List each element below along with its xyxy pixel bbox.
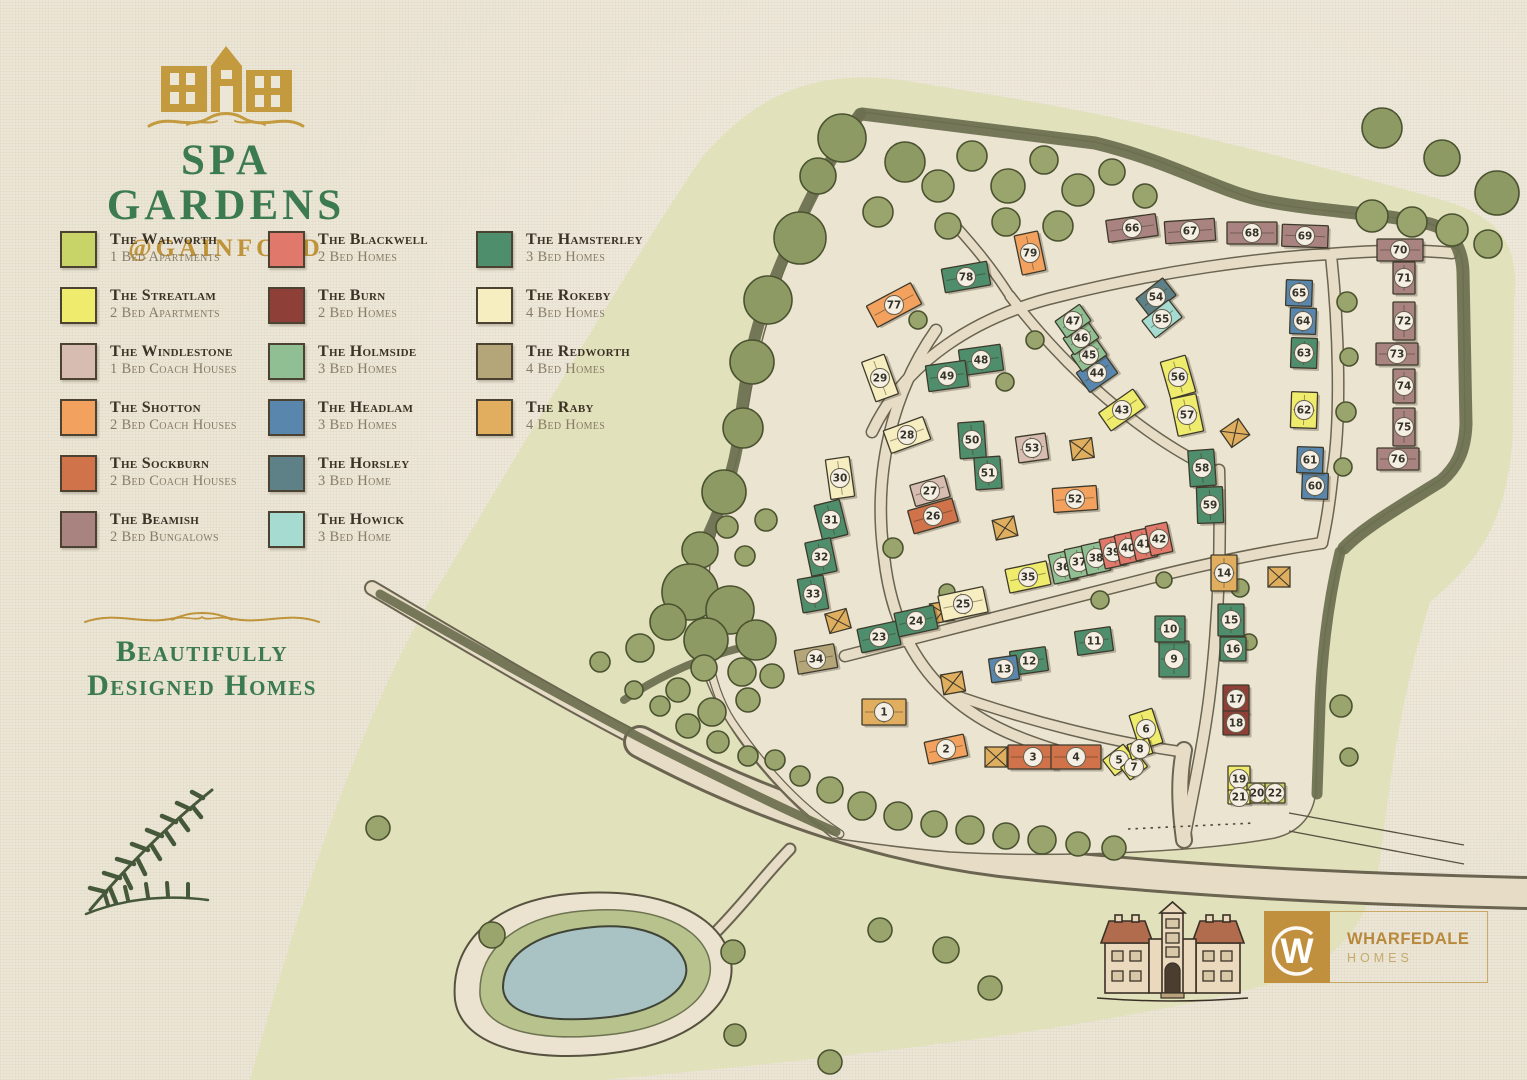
- plot-18[interactable]: 18: [1223, 711, 1252, 738]
- legend-house-name: The Raby: [526, 399, 605, 417]
- tree-icon: [1334, 458, 1352, 476]
- plot-76[interactable]: 76: [1377, 448, 1422, 473]
- legend-color-swatch: [268, 455, 305, 492]
- legend-house-desc: 4 Bed Homes: [526, 361, 630, 378]
- legend-item-walworth: The Walworth 1 Bed Apartments: [60, 231, 241, 269]
- legend-house-name: The Burn: [318, 287, 397, 305]
- legend-column: The Hamsterley 3 Bed Homes The Rokeby 4 …: [476, 231, 657, 549]
- legend-house-name: The Beamish: [110, 511, 219, 529]
- plot-number: 14: [1217, 568, 1232, 580]
- tree-icon: [991, 169, 1025, 203]
- plot-number: 52: [1068, 494, 1083, 506]
- svg-text:W: W: [1280, 932, 1313, 971]
- tree-icon: [935, 213, 961, 239]
- plot-75[interactable]: 75: [1393, 408, 1418, 449]
- tree-icon: [1336, 402, 1356, 422]
- plot-number: 16: [1226, 644, 1241, 656]
- plot-number: 33: [806, 589, 821, 601]
- legend-house-name: The Headlam: [318, 399, 413, 417]
- tree-icon: [1028, 826, 1056, 854]
- site-title: SPA GARDENS: [58, 138, 394, 228]
- plot-number: 75: [1397, 422, 1412, 434]
- plot-number: 11: [1087, 636, 1102, 648]
- plot-number: 12: [1022, 656, 1037, 668]
- plot-number: 71: [1397, 273, 1412, 285]
- garage-icon: [985, 747, 1007, 767]
- flourish-icon: [77, 608, 327, 630]
- plot-51[interactable]: 51: [974, 456, 1005, 492]
- tree-icon: [702, 470, 746, 514]
- plot-number: 38: [1089, 553, 1104, 565]
- legend-house-name: The Howick: [318, 511, 404, 529]
- tree-icon: [744, 276, 792, 324]
- legend-house-name: The Windlestone: [110, 343, 237, 361]
- tree-icon: [760, 664, 784, 688]
- legend-item-blackwell: The Blackwell 2 Bed Homes: [268, 231, 449, 269]
- legend-color-swatch: [476, 343, 513, 380]
- plot-number: 32: [814, 552, 829, 564]
- legend-item-beamish: The Beamish 2 Bed Bungalows: [60, 511, 241, 549]
- tree-icon: [956, 816, 984, 844]
- plot-number: 74: [1397, 381, 1412, 393]
- legend-house-name: The Hamsterley: [526, 231, 643, 249]
- tree-icon: [1362, 108, 1402, 148]
- plot-number: 60: [1308, 481, 1323, 493]
- tree-icon: [818, 1050, 842, 1074]
- legend-house-desc: 1 Bed Apartments: [110, 249, 220, 266]
- plot-number: 21: [1232, 792, 1247, 804]
- plot-50[interactable]: 50: [958, 421, 989, 461]
- legend-item-horsley: The Horsley 3 Bed Home: [268, 455, 449, 493]
- plot-number: 8: [1136, 744, 1143, 756]
- plot-62[interactable]: 62: [1290, 392, 1320, 431]
- plot-number: 78: [959, 272, 974, 284]
- plot-number: 19: [1232, 774, 1247, 786]
- legend-house-desc: 2 Bed Apartments: [110, 305, 220, 322]
- plot-number: 44: [1090, 368, 1105, 380]
- legend-item-raby: The Raby 4 Bed Homes: [476, 399, 657, 437]
- tree-icon: [738, 746, 758, 766]
- legend-color-swatch: [60, 343, 97, 380]
- plot-number: 69: [1298, 231, 1313, 243]
- plot-number: 29: [873, 373, 888, 385]
- tree-icon: [765, 750, 785, 770]
- plot-number: 2: [942, 744, 949, 756]
- legend-house-name: The Holmside: [318, 343, 417, 361]
- tree-icon: [1066, 832, 1090, 856]
- plot-number: 10: [1163, 624, 1178, 636]
- developer-division: HOMES: [1347, 951, 1487, 965]
- tree-icon: [626, 634, 654, 662]
- plot-65[interactable]: 65: [1285, 280, 1314, 309]
- plot-number: 17: [1229, 694, 1244, 706]
- plot-number: 46: [1074, 333, 1089, 345]
- plot-number: 66: [1125, 223, 1140, 235]
- plot-number: 62: [1297, 405, 1312, 417]
- plot-74[interactable]: 74: [1393, 369, 1418, 406]
- tree-icon: [992, 208, 1020, 236]
- tree-icon: [1474, 230, 1502, 258]
- legend-house-desc: 3 Bed Homes: [318, 417, 413, 434]
- plot-number: 35: [1021, 572, 1036, 584]
- tree-icon: [818, 114, 866, 162]
- tree-icon: [848, 792, 876, 820]
- tree-icon: [728, 658, 756, 686]
- legend-house-name: The Shotton: [110, 399, 237, 417]
- legend-color-swatch: [268, 231, 305, 268]
- tree-icon: [707, 731, 729, 753]
- plot-number: 1: [880, 707, 887, 719]
- fern-illustration: [62, 768, 252, 918]
- legend-color-swatch: [268, 287, 305, 324]
- tree-icon: [933, 937, 959, 963]
- tree-icon: [978, 976, 1002, 1000]
- plot-number: 5: [1115, 755, 1122, 767]
- tree-icon: [1030, 146, 1058, 174]
- plot-1[interactable]: 1: [862, 699, 909, 728]
- tree-icon: [682, 532, 718, 568]
- garage-icon: [992, 516, 1018, 540]
- legend-house-desc: 2 Bed Coach Houses: [110, 473, 237, 490]
- plot-number: 27: [923, 486, 938, 498]
- tree-icon: [1156, 572, 1172, 588]
- legend-item-streatlam: The Streatlam 2 Bed Apartments: [60, 287, 241, 325]
- tree-icon: [790, 766, 810, 786]
- tree-icon: [724, 1024, 746, 1046]
- plot-number: 68: [1245, 228, 1260, 240]
- tree-icon: [1330, 695, 1352, 717]
- tree-icon: [1062, 174, 1094, 206]
- legend-item-holmside: The Holmside 3 Bed Homes: [268, 343, 449, 381]
- plot-68[interactable]: 68: [1227, 222, 1280, 247]
- tagline-line-2: Designed Homes: [46, 669, 358, 703]
- plot-number: 56: [1171, 372, 1186, 384]
- tree-icon: [698, 698, 726, 726]
- house-logo-icon: [139, 26, 314, 138]
- plot-number: 45: [1082, 350, 1097, 362]
- legend-house-desc: 2 Bed Homes: [318, 249, 428, 266]
- tree-icon: [1436, 214, 1468, 246]
- tree-icon: [922, 170, 954, 202]
- plot-63[interactable]: 63: [1290, 338, 1320, 371]
- legend-color-swatch: [60, 455, 97, 492]
- legend-house-desc: 4 Bed Homes: [526, 417, 605, 434]
- plot-21[interactable]: 21: [1228, 788, 1253, 807]
- tree-icon: [1091, 591, 1109, 609]
- legend-house-desc: 3 Bed Home: [318, 473, 410, 490]
- plot-14[interactable]: 14: [1211, 555, 1240, 594]
- tree-icon: [755, 509, 777, 531]
- tree-icon: [1043, 211, 1073, 241]
- plot-11[interactable]: 11: [1075, 626, 1117, 658]
- tree-icon: [1356, 200, 1388, 232]
- plot-52[interactable]: 52: [1052, 485, 1100, 515]
- legend-color-swatch: [60, 231, 97, 268]
- plot-number: 9: [1170, 654, 1177, 666]
- plot-number: 77: [887, 300, 902, 312]
- tree-icon: [1475, 171, 1519, 215]
- plot-9[interactable]: 9: [1159, 641, 1192, 680]
- legend-column: The Walworth 1 Bed Apartments The Streat…: [60, 231, 241, 549]
- tree-icon: [691, 655, 717, 681]
- legend-house-desc: 2 Bed Coach Houses: [110, 417, 237, 434]
- wharfedale-monogram-icon: W: [1264, 911, 1330, 983]
- plot-70[interactable]: 70: [1377, 239, 1426, 264]
- legend-house-desc: 4 Bed Homes: [526, 305, 611, 322]
- legend-house-desc: 2 Bed Homes: [318, 305, 397, 322]
- legend-color-swatch: [476, 399, 513, 436]
- tree-icon: [868, 918, 892, 942]
- plot-16[interactable]: 16: [1220, 637, 1249, 664]
- legend-item-shotton: The Shotton 2 Bed Coach Houses: [60, 399, 241, 437]
- tree-icon: [1337, 292, 1357, 312]
- tree-icon: [736, 688, 760, 712]
- plot-number: 13: [997, 664, 1012, 676]
- tree-icon: [1340, 748, 1358, 766]
- plot-58[interactable]: 58: [1188, 449, 1219, 489]
- plot-73[interactable]: 73: [1376, 343, 1421, 368]
- tree-icon: [774, 212, 826, 264]
- legend-house-desc: 3 Bed Home: [318, 529, 404, 546]
- tree-icon: [479, 922, 505, 948]
- plot-number: 58: [1195, 463, 1210, 475]
- legend-color-swatch: [60, 287, 97, 324]
- tree-icon: [723, 408, 763, 448]
- plot-13[interactable]: 13: [988, 655, 1022, 685]
- plot-number: 30: [833, 473, 848, 485]
- tree-icon: [921, 811, 947, 837]
- tree-icon: [716, 516, 738, 538]
- tree-icon: [957, 141, 987, 171]
- legend-house-name: The Walworth: [110, 231, 220, 249]
- developer-name: WHARFEDALE: [1347, 930, 1487, 949]
- legend-house-name: The Streatlam: [110, 287, 220, 305]
- plot-15[interactable]: 15: [1218, 604, 1247, 639]
- legend-house-desc: 3 Bed Homes: [526, 249, 643, 266]
- legend-item-sockburn: The Sockburn 2 Bed Coach Houses: [60, 455, 241, 493]
- tree-icon: [590, 652, 610, 672]
- legend-house-name: The Rokeby: [526, 287, 611, 305]
- legend-item-headlam: The Headlam 3 Bed Homes: [268, 399, 449, 437]
- plot-number: 59: [1203, 500, 1218, 512]
- tree-icon: [676, 714, 700, 738]
- plot-number: 6: [1142, 724, 1149, 736]
- plot-67[interactable]: 67: [1164, 218, 1218, 246]
- legend-house-name: The Sockburn: [110, 455, 237, 473]
- legend-house-desc: 1 Bed Coach Houses: [110, 361, 237, 378]
- plot-number: 54: [1149, 292, 1164, 304]
- tree-icon: [1340, 348, 1358, 366]
- legend-house-name: The Redworth: [526, 343, 630, 361]
- tree-icon: [1397, 207, 1427, 237]
- plot-number: 47: [1066, 316, 1081, 328]
- plot-number: 31: [824, 515, 839, 527]
- plot-number: 72: [1397, 316, 1412, 328]
- plot-64[interactable]: 64: [1289, 308, 1318, 337]
- plot-59[interactable]: 59: [1196, 486, 1226, 525]
- tree-icon: [996, 373, 1014, 391]
- legend-color-swatch: [60, 511, 97, 548]
- tree-icon: [1424, 140, 1460, 176]
- legend-house-desc: 3 Bed Homes: [318, 361, 417, 378]
- legend-color-swatch: [268, 399, 305, 436]
- tree-icon: [730, 340, 774, 384]
- legend-item-windlestone: The Windlestone 1 Bed Coach Houses: [60, 343, 241, 381]
- plot-72[interactable]: 72: [1393, 302, 1418, 343]
- tree-icon: [885, 142, 925, 182]
- plot-number: 64: [1296, 316, 1311, 328]
- plot-number: 34: [809, 654, 824, 666]
- plot-number: 4: [1072, 752, 1079, 764]
- legend-color-swatch: [268, 511, 305, 548]
- plot-number: 25: [956, 599, 971, 611]
- plot-number: 48: [974, 355, 989, 367]
- plot-number: 50: [965, 435, 980, 447]
- plot-number: 26: [926, 511, 941, 523]
- plot-number: 73: [1390, 349, 1405, 361]
- tree-icon: [1133, 184, 1157, 208]
- garage-icon: [940, 671, 965, 695]
- plot-number: 7: [1130, 762, 1137, 774]
- legend-color-swatch: [476, 287, 513, 324]
- plot-number: 67: [1183, 226, 1198, 238]
- plot-number: 15: [1224, 615, 1239, 627]
- tree-icon: [863, 197, 893, 227]
- plot-22[interactable]: 22: [1265, 783, 1288, 806]
- plot-53[interactable]: 53: [1015, 433, 1051, 466]
- house-type-legend: The Walworth 1 Bed Apartments The Streat…: [60, 231, 657, 549]
- plot-number: 24: [909, 616, 924, 628]
- plot-number: 51: [981, 468, 996, 480]
- tree-icon: [650, 604, 686, 640]
- plot-number: 79: [1023, 248, 1038, 260]
- plot-number: 70: [1393, 245, 1408, 257]
- brand-header: SPA GARDENS @GAINFORD: [58, 26, 394, 263]
- plot-49[interactable]: 49: [925, 360, 971, 394]
- tagline: Beautifully Designed Homes: [46, 608, 358, 702]
- plot-number: 61: [1303, 455, 1318, 467]
- tree-icon: [1099, 159, 1125, 185]
- plot-number: 28: [900, 430, 915, 442]
- plot-number: 63: [1297, 348, 1312, 360]
- tree-icon: [800, 158, 836, 194]
- tree-icon: [366, 816, 390, 840]
- plot-number: 53: [1025, 443, 1040, 455]
- legend-item-howick: The Howick 3 Bed Home: [268, 511, 449, 549]
- tree-icon: [666, 678, 690, 702]
- plot-number: 55: [1155, 314, 1170, 326]
- plot-10[interactable]: 10: [1155, 616, 1188, 645]
- plot-number: 76: [1391, 454, 1406, 466]
- plot-60[interactable]: 60: [1301, 473, 1330, 502]
- developer-name-box: WHARFEDALE HOMES: [1330, 911, 1488, 983]
- tree-icon: [625, 681, 643, 699]
- plot-number: 42: [1152, 534, 1167, 546]
- legend-house-name: The Horsley: [318, 455, 410, 473]
- tree-icon: [909, 311, 927, 329]
- plot-number: 57: [1180, 410, 1195, 422]
- legend-item-redworth: The Redworth 4 Bed Homes: [476, 343, 657, 381]
- developer-logo: W WHARFEDALE HOMES: [1264, 911, 1488, 983]
- tree-icon: [650, 696, 670, 716]
- legend-color-swatch: [60, 399, 97, 436]
- legend-item-burn: The Burn 2 Bed Homes: [268, 287, 449, 325]
- tree-icon: [817, 777, 843, 803]
- tree-icon: [884, 802, 912, 830]
- plot-69[interactable]: 69: [1282, 224, 1331, 250]
- plot-number: 65: [1292, 288, 1307, 300]
- plot-61[interactable]: 61: [1296, 447, 1325, 476]
- legend-item-hamsterley: The Hamsterley 3 Bed Homes: [476, 231, 657, 269]
- legend-house-name: The Blackwell: [318, 231, 428, 249]
- plot-number: 3: [1029, 752, 1036, 764]
- garage-icon: [1268, 567, 1290, 587]
- tree-icon: [1026, 331, 1044, 349]
- tree-icon: [736, 620, 776, 660]
- tagline-line-1: Beautifully: [46, 635, 358, 669]
- plot-71[interactable]: 71: [1393, 262, 1418, 297]
- manor-house-illustration: [1085, 891, 1260, 1009]
- plot-4[interactable]: 4: [1051, 745, 1104, 772]
- plot-number: 18: [1229, 718, 1244, 730]
- legend-column: The Blackwell 2 Bed Homes The Burn 2 Bed…: [268, 231, 449, 549]
- legend-house-desc: 2 Bed Bungalows: [110, 529, 219, 546]
- garage-icon: [1070, 438, 1095, 461]
- tree-icon: [1102, 836, 1126, 860]
- tree-icon: [735, 546, 755, 566]
- plot-number: 22: [1268, 788, 1283, 800]
- legend-color-swatch: [268, 343, 305, 380]
- plot-number: 43: [1115, 405, 1130, 417]
- legend-color-swatch: [476, 231, 513, 268]
- tree-icon: [993, 823, 1019, 849]
- plot-number: 49: [940, 371, 955, 383]
- legend-item-rokeby: The Rokeby 4 Bed Homes: [476, 287, 657, 325]
- plot-number: 23: [872, 632, 887, 644]
- tree-icon: [721, 940, 745, 964]
- tree-icon: [883, 538, 903, 558]
